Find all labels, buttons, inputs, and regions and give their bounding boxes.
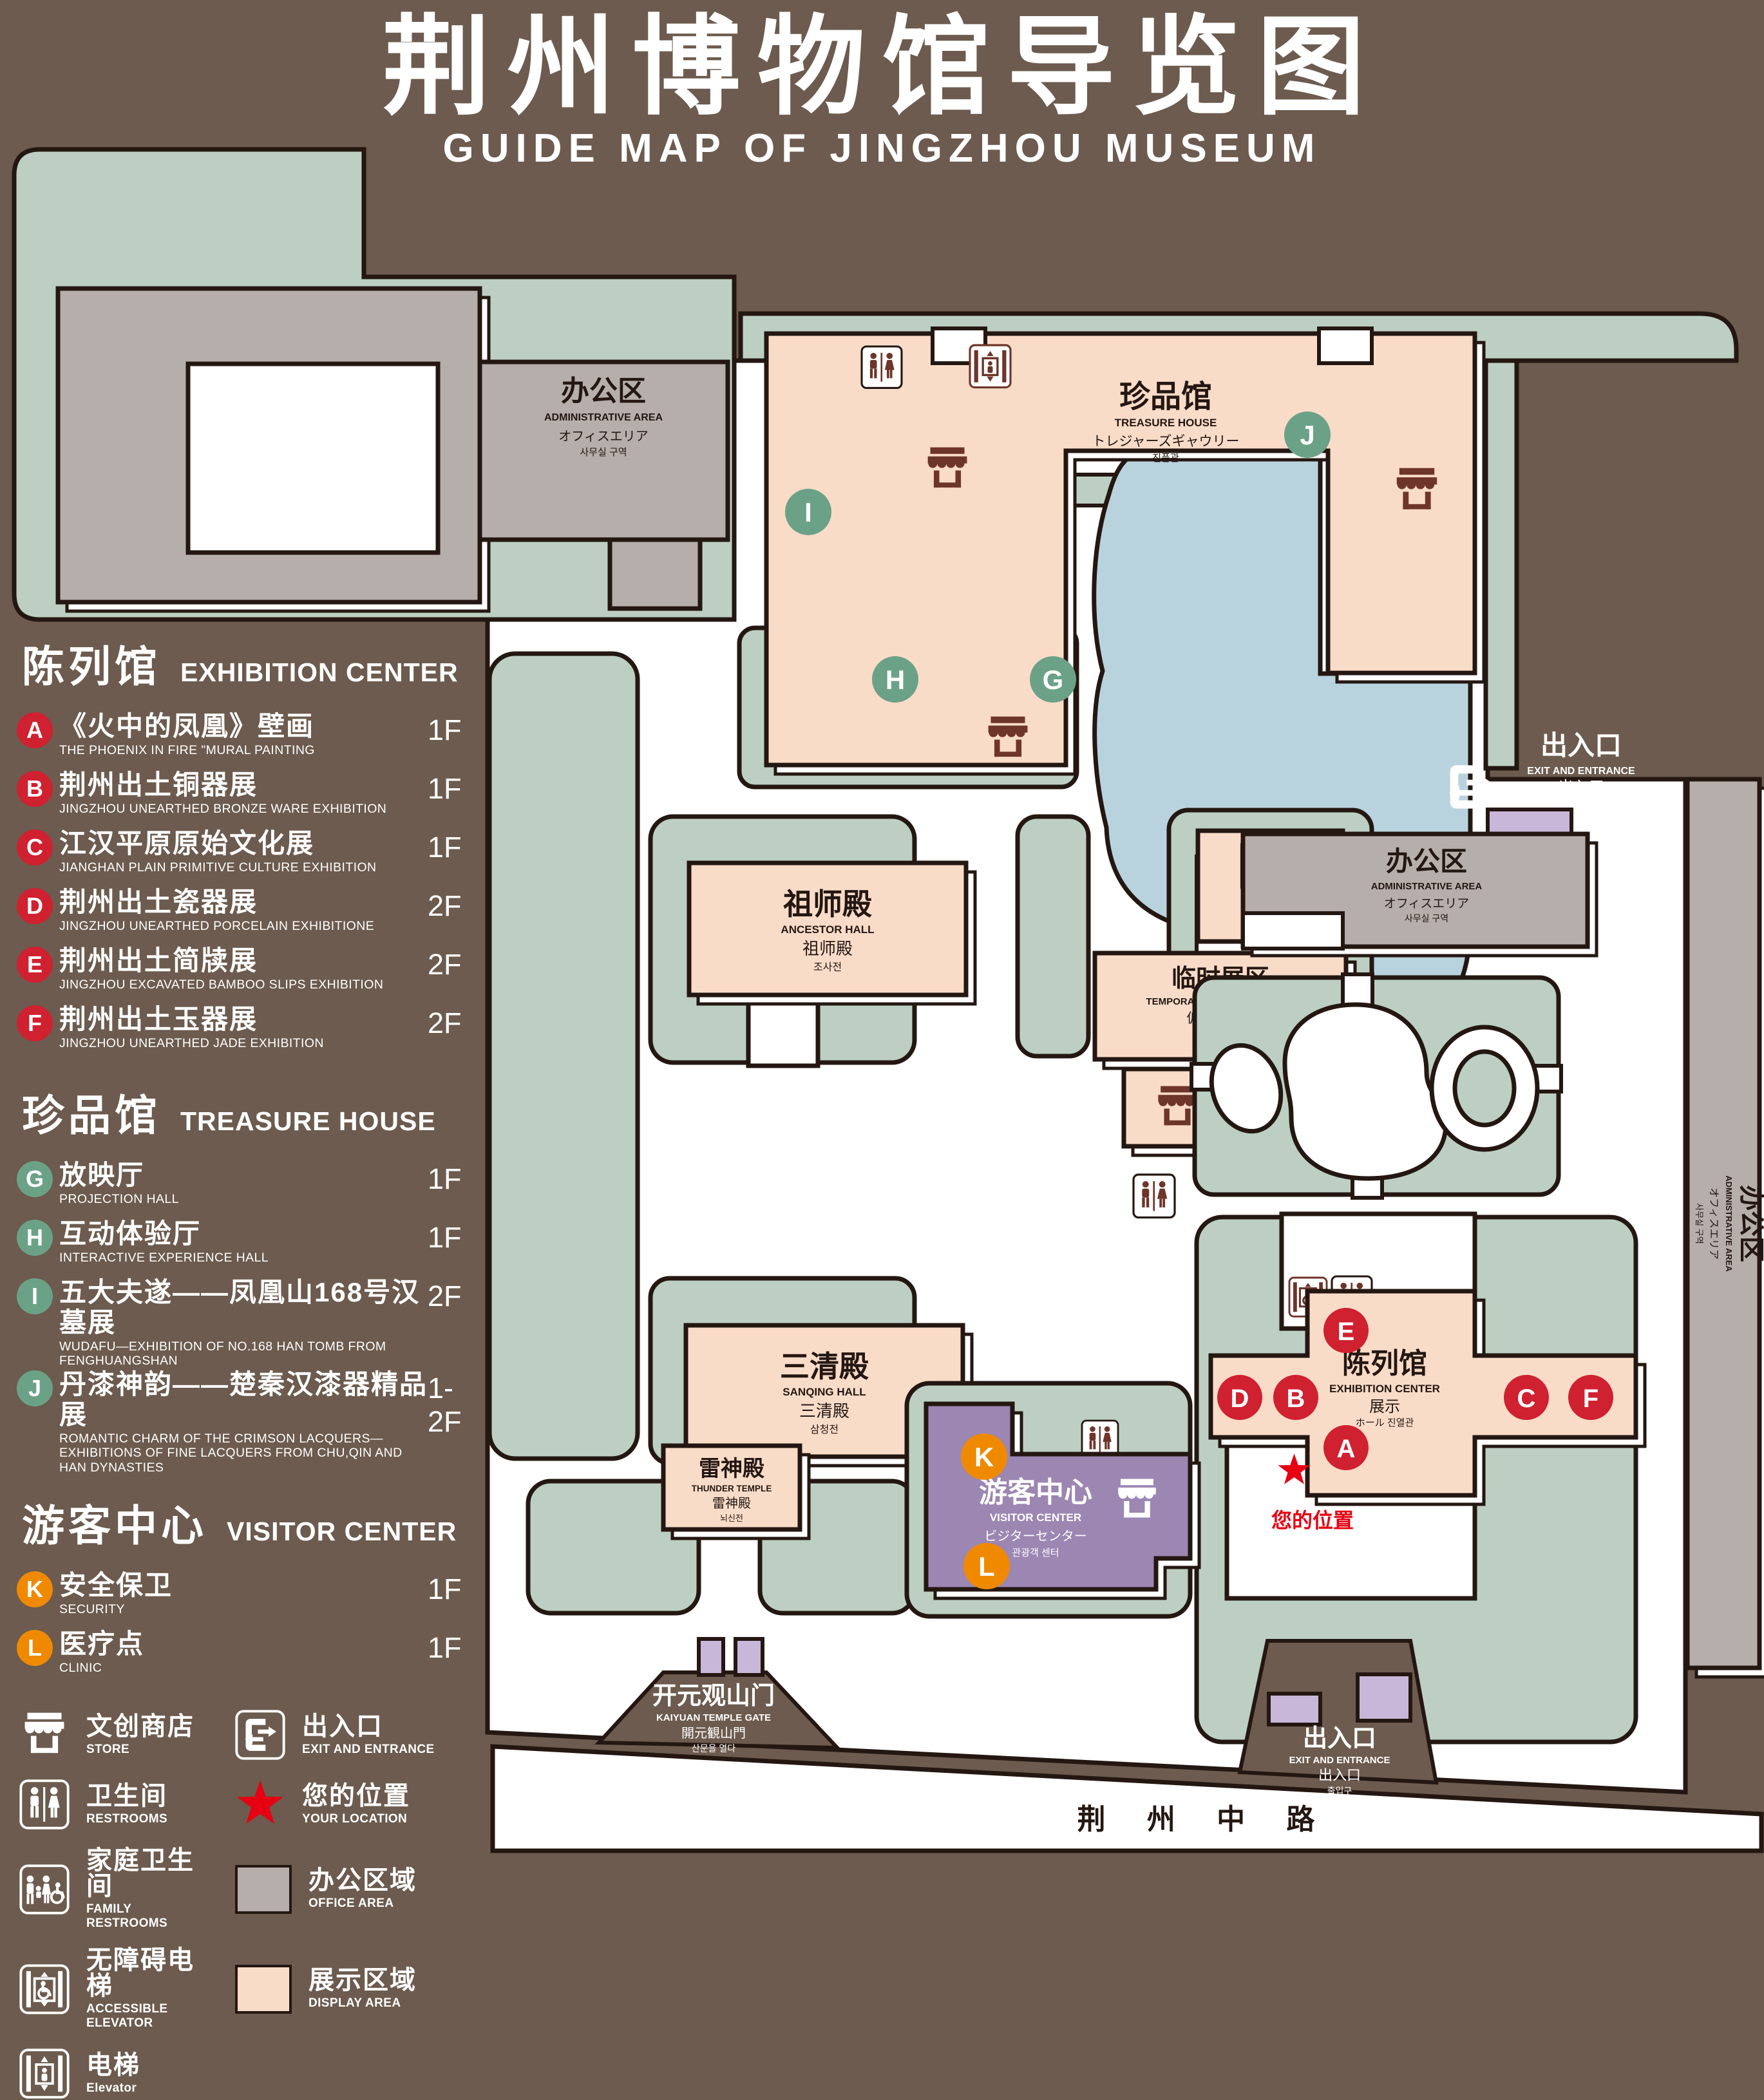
map-badge-G: G xyxy=(1030,656,1076,703)
sanqing-zh2: 三清殿 xyxy=(799,1401,849,1421)
svg-text:J: J xyxy=(1300,420,1314,450)
symbol-store: 文创商店 STORE xyxy=(19,1708,216,1761)
legend-item-a: A 《火中的凤凰》壁画 THE PHOENIX IN FIRE "MURAL P… xyxy=(17,711,487,769)
svg-text:G: G xyxy=(1043,665,1064,695)
sanqing-zh: 三清殿 xyxy=(780,1350,869,1383)
admin-right-kr: 사무실 구역 xyxy=(1694,1203,1704,1244)
exhibition-en: EXHIBITION CENTER xyxy=(1329,1383,1440,1395)
visitor-ja: ビジターセンター xyxy=(984,1529,1087,1544)
legend-section-exhibition: 陈列馆 EXHIBITION CENTER xyxy=(22,632,487,694)
store-icon xyxy=(19,1710,70,1760)
badge-k: K xyxy=(17,1571,53,1607)
map-badge-D: D xyxy=(1217,1375,1262,1420)
svg-text:B: B xyxy=(1287,1385,1305,1413)
your-location-label: 您的位置 xyxy=(1271,1509,1354,1532)
display-swatch xyxy=(235,1965,292,2014)
legend-item-b: B 荆州出土铜器展 JINGZHOU UNEARTHED BRONZE WARE… xyxy=(17,770,487,828)
ancestor-zh2: 祖师殿 xyxy=(802,939,853,958)
section-title-en: EXHIBITION CENTER xyxy=(180,657,459,688)
symbol-accessible-elevator: 无障碍电梯 ACCESSIBLE ELEVATOR xyxy=(19,1947,216,2030)
thunder-kr: 뇌신전 xyxy=(720,1513,743,1523)
legend-item-g: G 放映厅 PROJECTION HALL 1F xyxy=(17,1160,487,1218)
visitor-en: VISITOR CENTER xyxy=(990,1511,1081,1524)
center-right: 办公区 ADMINISTRATIVE AREA オフィスエリア 사무실 구역 xyxy=(1191,834,1597,1198)
badge-e: E xyxy=(17,947,53,983)
legend-item-l: L 医疗点 CLINIC 1F xyxy=(17,1629,487,1687)
exhibition-zh: 陈列馆 xyxy=(1342,1348,1427,1379)
sanqing-en: SANQING HALL xyxy=(782,1386,866,1398)
map-badge-J: J xyxy=(1284,411,1331,458)
admin-topleft-label-zh: 办公区 xyxy=(561,375,646,407)
badge-j: J xyxy=(17,1370,53,1406)
admin-strip-right: 办公区 ADMINISTRATIVE AREA オフィスエリア 사무실 구역 xyxy=(1687,779,1764,1677)
ancestor-kr: 조사전 xyxy=(813,961,842,973)
exit-bottom-kiosk xyxy=(1358,1674,1410,1721)
svg-text:F: F xyxy=(1583,1385,1598,1413)
elevator-icon xyxy=(970,345,1010,388)
admin-topleft-label-kr: 사무실 구역 xyxy=(580,447,627,458)
svg-text:I: I xyxy=(804,497,812,527)
legend-section-visitor: 游客中心 VISITOR CENTER xyxy=(22,1491,487,1553)
map-badge-I: I xyxy=(785,489,831,535)
map-badge-L: L xyxy=(963,1543,1010,1589)
exit-bottom-kr: 출입구 xyxy=(1327,1786,1352,1796)
exit-top-zh: 出入口 xyxy=(1541,730,1622,761)
badge-l: L xyxy=(17,1630,53,1666)
visitor-center-zone: 游客中心 VISITOR CENTER ビジターセンター 관광객 센터 K L xyxy=(907,1383,1199,1616)
legend-section-treasure: 珍品馆 TREASURE HOUSE xyxy=(22,1081,487,1143)
treasure-label-zh: 珍品馆 xyxy=(1119,380,1212,414)
exit-bottom-kiosk xyxy=(1269,1694,1320,1725)
exhibition-ja: 展示 xyxy=(1369,1398,1400,1415)
admin-center-kr: 사무실 구역 xyxy=(1405,913,1448,923)
restroom-icon xyxy=(19,1779,70,1830)
legend-item-c: C 江汉平原原始文化展 JIANGHAN PLAIN PRIMITIVE CUL… xyxy=(17,828,487,886)
admin-right-ja: オフィスエリア xyxy=(1708,1187,1719,1260)
legend-item-h: H 互动体验厅 INTERACTIVE EXPERIENCE HALL 1F xyxy=(17,1218,487,1276)
admin-center-en: ADMINISTRATIVE AREA xyxy=(1371,881,1483,892)
treasure-label-kr: 진품관 xyxy=(1152,453,1179,464)
admin-area-topleft: 办公区 ADMINISTRATIVE AREA オフィスエリア 사무실 구역 xyxy=(14,149,734,620)
exit-bottom-zone: 出入口 EXIT AND ENTRANCE 出入口 출입구 xyxy=(1240,1641,1436,1796)
gate-zh: 开元观山门 xyxy=(652,1683,775,1710)
guide-map-poster: 荆州博物馆导览图 GUIDE MAP OF JINGZHOU MUSEUM xyxy=(0,0,1764,1886)
office-swatch xyxy=(235,1865,292,1914)
admin-center-ja: オフィスエリア xyxy=(1384,897,1470,911)
gate-door xyxy=(699,1639,723,1675)
symbol-restrooms: 卫生间 RESTROOMS xyxy=(19,1778,216,1831)
accessible-elevator-icon xyxy=(19,1964,70,2014)
gate-ja: 開元観山門 xyxy=(681,1726,746,1741)
symbol-exit: 出入口 EXIT AND ENTRANCE xyxy=(235,1708,487,1761)
exit-bottom-en: EXIT AND ENTRANCE xyxy=(1289,1755,1390,1766)
map-badge-H: H xyxy=(872,656,918,703)
restroom-icon xyxy=(1133,1175,1175,1218)
admin-right-en: ADMINISTRATIVE AREA xyxy=(1724,1175,1734,1272)
restroom-icon xyxy=(862,346,902,388)
svg-text:L: L xyxy=(978,1551,995,1582)
exit-bottom-zh2: 出入口 xyxy=(1318,1767,1361,1783)
symbol-elevator: 电梯 Elevator xyxy=(19,2047,216,2100)
symbol-family-restrooms: 家庭卫生间 FAMILY RESTROOMS xyxy=(19,1848,216,1931)
road-label: 荆 州 中 路 xyxy=(1077,1804,1332,1835)
map-badge-K: K xyxy=(961,1433,1007,1480)
treasure-label-ja: トレジャーズギャウリー xyxy=(1092,434,1240,449)
thunder-zh2: 雷神殿 xyxy=(712,1496,751,1511)
symbol-office-area: 办公区域 OFFICE AREA xyxy=(235,1848,487,1931)
gate-kr: 산문을 열다 xyxy=(692,1743,735,1754)
admin-center-zh: 办公区 xyxy=(1386,846,1467,876)
thunder-zh: 雷神殿 xyxy=(699,1457,764,1481)
exit-icon xyxy=(235,1710,285,1760)
badge-h: H xyxy=(17,1220,53,1256)
map-badge-E: E xyxy=(1323,1308,1369,1353)
exhibition-kr: ホール 진열관 xyxy=(1356,1417,1414,1428)
section-title-zh: 陈列馆 xyxy=(22,632,161,694)
legend-item-i: I 五大夫遂——凤凰山168号汉墓展 WUDAFU—EXHIBITION OF … xyxy=(17,1277,487,1368)
badge-g: G xyxy=(17,1161,53,1197)
legend-item-d: D 荆州出土瓷器展 JINGZHOU UNEARTHED PORCELAIN E… xyxy=(17,887,487,945)
gate-door xyxy=(735,1639,763,1675)
svg-text:H: H xyxy=(886,665,905,695)
family-restroom-icon xyxy=(19,1864,70,1915)
map-badge-B: B xyxy=(1273,1375,1318,1420)
ancestor-en: ANCESTOR HALL xyxy=(781,923,874,936)
admin-topleft-label-ja: オフィスエリア xyxy=(558,430,649,444)
location-star-icon xyxy=(235,1779,285,1830)
badge-c: C xyxy=(17,829,53,866)
admin-topleft-label-en: ADMINISTRATIVE AREA xyxy=(544,412,663,423)
legend-item-k: K 安全保卫 SECURITY 1F xyxy=(17,1570,487,1628)
badge-d: D xyxy=(17,888,53,924)
admin-right-zh: 办公区 xyxy=(1737,1185,1764,1262)
visitor-zh: 游客中心 xyxy=(979,1477,1092,1508)
exit-top-zh2: 出入口 xyxy=(1558,779,1604,796)
svg-text:A: A xyxy=(1337,1435,1356,1463)
exit-top-en: EXIT AND ENTRANCE xyxy=(1527,766,1635,777)
svg-text:D: D xyxy=(1231,1385,1249,1413)
sanqing-kr: 삼청전 xyxy=(810,1424,839,1435)
ancestor-zh: 祖师殿 xyxy=(783,887,872,921)
legend-item-j: J 丹漆神韵——楚秦汉漆器精品展 ROMANTIC CHARM OF THE C… xyxy=(17,1369,487,1475)
elevator-icon xyxy=(19,2048,70,2099)
map-badge-A: A xyxy=(1323,1425,1369,1470)
legend-item-f: F 荆州出土玉器展 JINGZHOU UNEARTHED JADE EXHIBI… xyxy=(17,1004,487,1062)
thunder-en: THUNDER TEMPLE xyxy=(692,1484,772,1493)
treasure-label-en: TREASURE HOUSE xyxy=(1115,417,1217,429)
symbol-your-location: 您的位置 YOUR LOCATION xyxy=(235,1778,487,1831)
map-badge-F: F xyxy=(1568,1375,1613,1420)
badge-f: F xyxy=(17,1005,53,1041)
svg-text:E: E xyxy=(1338,1318,1355,1346)
legend-item-e: E 荆州出土简牍展 JINGZHOU EXCAVATED BAMBOO SLIP… xyxy=(17,945,487,1003)
badge-i: I xyxy=(17,1278,53,1314)
legend-symbols: 文创商店 STORE 出入口 EXIT AND ENTRANCE 卫生间 RES… xyxy=(19,1708,487,2100)
visitor-kr: 관광객 센터 xyxy=(1012,1547,1059,1558)
exit-bottom-zh: 出入口 xyxy=(1303,1725,1376,1752)
map-badge-C: C xyxy=(1504,1375,1549,1420)
legend-panel: 陈列馆 EXHIBITION CENTER A 《火中的凤凰》壁画 THE PH… xyxy=(17,632,487,2100)
svg-text:K: K xyxy=(974,1442,994,1472)
svg-text:C: C xyxy=(1517,1385,1536,1413)
badge-a: A xyxy=(17,712,53,748)
badge-b: B xyxy=(17,771,53,807)
gate-en: KAIYUAN TEMPLE GATE xyxy=(656,1712,771,1723)
symbol-display-area: 展示区域 DISPLAY AREA xyxy=(235,1947,487,2030)
